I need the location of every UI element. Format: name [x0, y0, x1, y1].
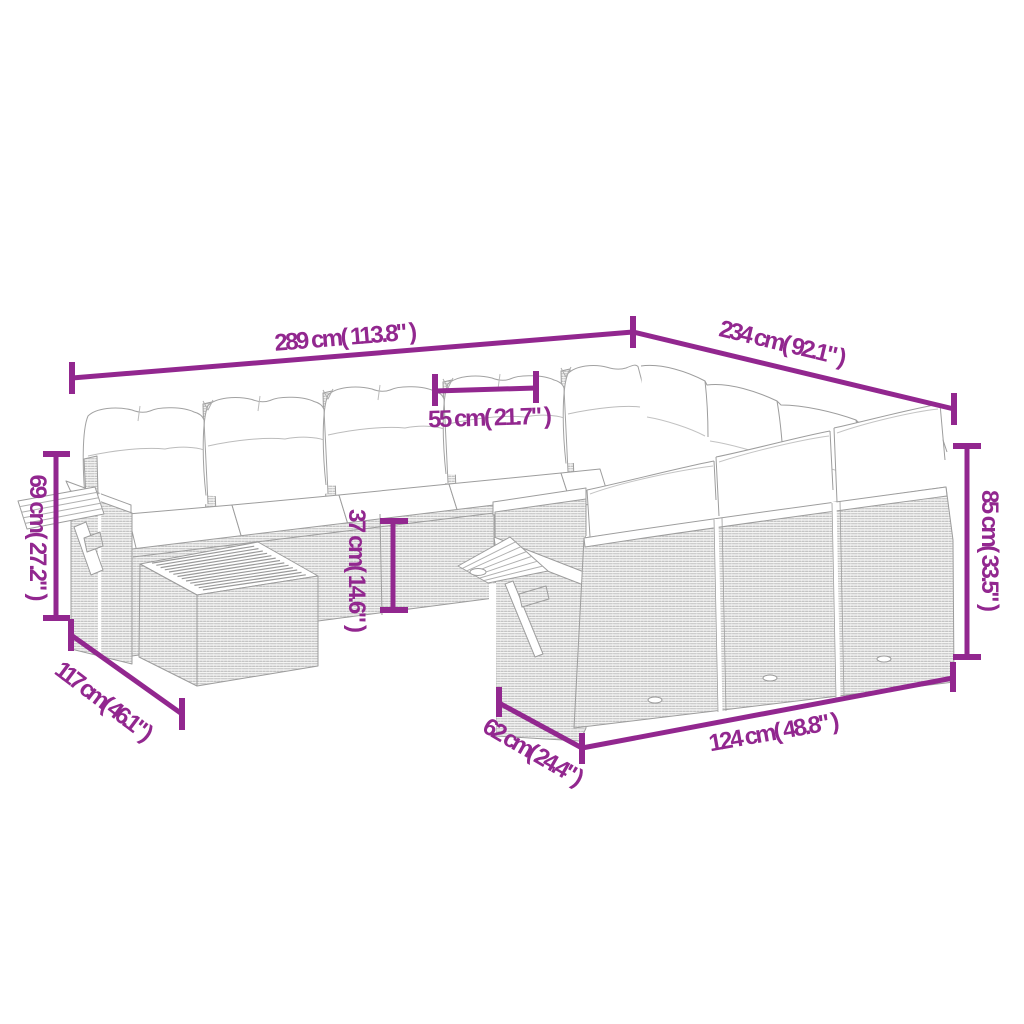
svg-text:85 cm( 33.5" ): 85 cm( 33.5" ) [976, 490, 1003, 612]
svg-text:69 cm( 27.2" ): 69 cm( 27.2" ) [24, 475, 51, 602]
svg-text:37 cm( 14.6" ): 37 cm( 14.6" ) [343, 509, 370, 633]
svg-text:55 cm( 21.7" ): 55 cm( 21.7" ) [428, 403, 553, 434]
